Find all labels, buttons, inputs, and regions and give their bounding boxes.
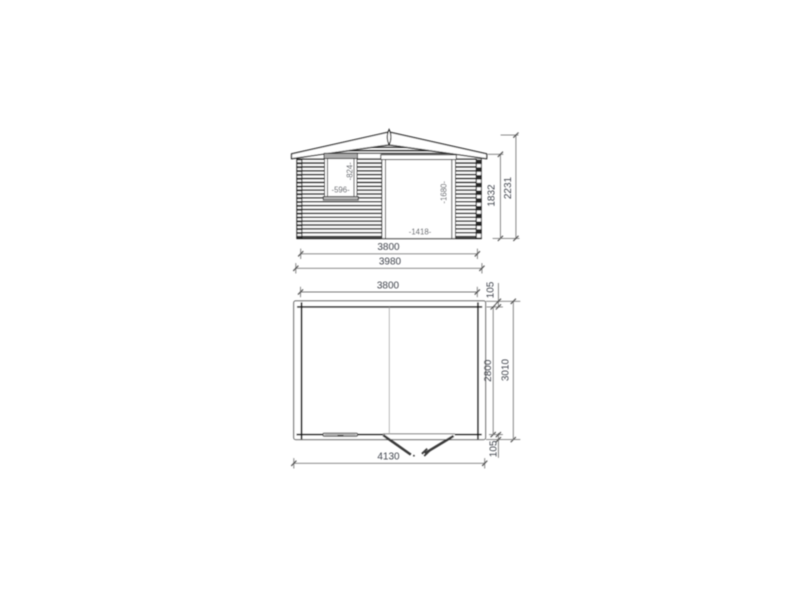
- svg-text:3010: 3010: [501, 358, 512, 381]
- svg-text:1832: 1832: [487, 184, 498, 207]
- svg-text:-1418-: -1418-: [409, 227, 432, 236]
- svg-text:2800: 2800: [483, 359, 494, 382]
- svg-text:-596-: -596-: [331, 186, 350, 195]
- svg-text:3800: 3800: [377, 280, 400, 291]
- svg-text:-1680-: -1680-: [439, 181, 448, 204]
- svg-text:2231: 2231: [503, 176, 514, 199]
- svg-text:-824-: -824-: [346, 162, 355, 181]
- svg-text:3980: 3980: [379, 256, 402, 267]
- svg-text:3800: 3800: [377, 242, 400, 253]
- svg-text:105: 105: [489, 440, 500, 457]
- svg-text:105: 105: [485, 281, 496, 298]
- svg-text:4130: 4130: [377, 451, 400, 462]
